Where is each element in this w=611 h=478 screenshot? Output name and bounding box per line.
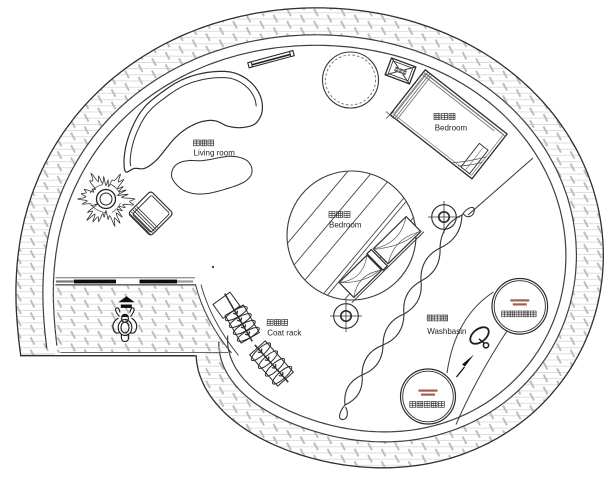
svg-text:Washbasin: Washbasin [427, 327, 466, 336]
svg-text:Bedroom: Bedroom [435, 124, 468, 133]
svg-text:Bedroom: Bedroom [329, 221, 362, 230]
svg-text:Coat rack: Coat rack [267, 329, 302, 338]
svg-text:Living room: Living room [194, 148, 236, 157]
